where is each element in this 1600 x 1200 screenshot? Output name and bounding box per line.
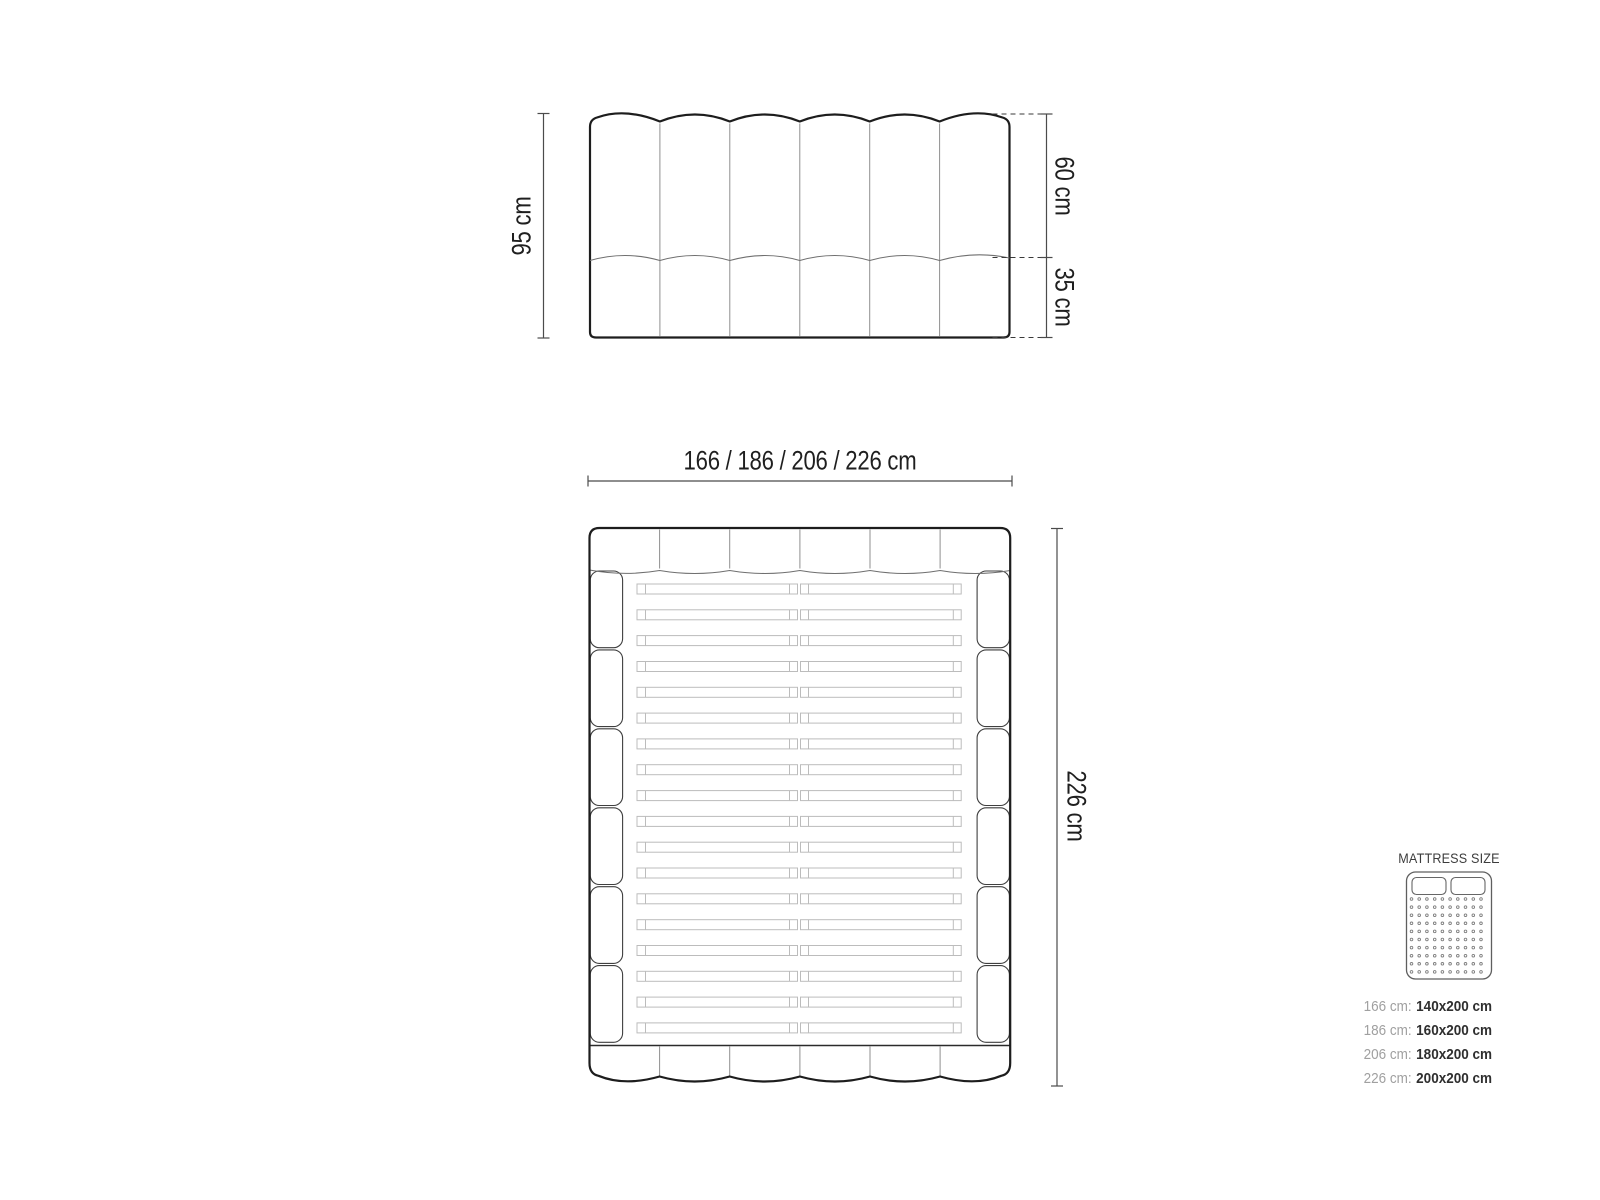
slat-left [637,687,798,697]
mattress-size-row: 186 cm: 160x200 cm [1319,1018,1492,1042]
slat-right [801,816,962,826]
mattress-size-row: 226 cm: 200x200 cm [1319,1066,1492,1090]
slat-left [637,971,798,981]
slat-right [801,894,962,904]
headboard-lower-height-label: 35 cm [1049,267,1080,326]
slat-right [801,584,962,594]
slat-left [637,739,798,749]
side-rail-segment [590,650,622,727]
slat-right [801,997,962,1007]
mattress-icon [1405,869,1495,983]
slat-left [637,894,798,904]
slat-left [637,765,798,775]
side-rail-segment [590,966,622,1043]
slat-left [637,791,798,801]
headboard-front-view [590,113,1010,337]
slat-left [637,1023,798,1033]
frame-width-label: 206 cm: [1364,1046,1412,1063]
side-rail-segment [977,571,1009,648]
slat-row [637,584,961,594]
slat-right [801,1023,962,1033]
slat-row [637,971,961,981]
frame-width-label: 226 cm: [1364,1070,1412,1087]
slat-right [801,765,962,775]
side-rail-segment [977,808,1009,885]
slat-row [637,610,961,620]
mattress-size-title: MATTRESS SIZE [1398,850,1500,866]
mattress-size-value: 160x200 cm [1416,1022,1492,1039]
slat-row [637,920,961,930]
slat-row [637,946,961,956]
slat-row [637,816,961,826]
slat-left [637,713,798,723]
headboard-height-label: 95 cm [507,196,538,255]
headboard-height-dimension [538,114,550,339]
bed-width-dimension [588,476,1012,487]
pillow-left-icon [1412,878,1446,895]
frame-width-label: 186 cm: [1364,1022,1412,1039]
slat-left [637,610,798,620]
slat-left [637,662,798,672]
side-rail-segment [977,887,1009,964]
slat-right [801,868,962,878]
slat-right [801,971,962,981]
slat-left [637,997,798,1007]
slat-area [637,584,961,1033]
bed-top-view [590,528,1011,1082]
slat-right [801,610,962,620]
slat-row [637,791,961,801]
slat-left [637,868,798,878]
mattress-size-value: 200x200 cm [1416,1070,1492,1087]
slat-row [637,662,961,672]
slat-left [637,946,798,956]
side-rail-segment [590,808,622,885]
slat-right [801,946,962,956]
slat-right [801,842,962,852]
pillow-right-icon [1451,878,1485,895]
slat-right [801,739,962,749]
slat-row [637,1023,961,1033]
slat-row [637,894,961,904]
headboard-upper-height-label: 60 cm [1049,156,1080,215]
slat-row [637,842,961,852]
furniture-dimension-diagram: 95 cm 60 cm 35 cm 166 / 186 / 206 / 226 … [0,0,1600,1200]
slat-left [637,636,798,646]
side-rail-segment [590,887,622,964]
slat-right [801,791,962,801]
side-rail-segment [977,650,1009,727]
bed-width-label: 166 / 186 / 206 / 226 cm [684,446,917,477]
slat-row [637,739,961,749]
slat-right [801,920,962,930]
side-rail-segment [590,729,622,806]
slat-right [801,687,962,697]
slat-left [637,920,798,930]
frame-width-label: 166 cm: [1364,998,1412,1015]
slat-left [637,816,798,826]
slat-row [637,997,961,1007]
side-rail-segment [977,729,1009,806]
slat-left [637,584,798,594]
mattress-size-value: 140x200 cm [1416,998,1492,1015]
headboard-strip-edge [590,570,1011,574]
mattress-size-row: 166 cm: 140x200 cm [1319,994,1492,1018]
slat-row [637,687,961,697]
mattress-size-value: 180x200 cm [1416,1046,1492,1063]
slat-right [801,636,962,646]
slat-right [801,662,962,672]
slat-row [637,636,961,646]
slat-left [637,842,798,852]
mattress-size-list: 166 cm: 140x200 cm 186 cm: 160x200 cm 20… [1300,994,1492,1090]
slat-right [801,713,962,723]
side-rail-segment [977,966,1009,1043]
slat-row [637,713,961,723]
mattress-size-row: 206 cm: 180x200 cm [1319,1042,1492,1066]
bed-length-label: 226 cm [1061,770,1092,841]
slat-row [637,765,961,775]
slat-row [637,868,961,878]
side-rail-segment [590,571,622,648]
